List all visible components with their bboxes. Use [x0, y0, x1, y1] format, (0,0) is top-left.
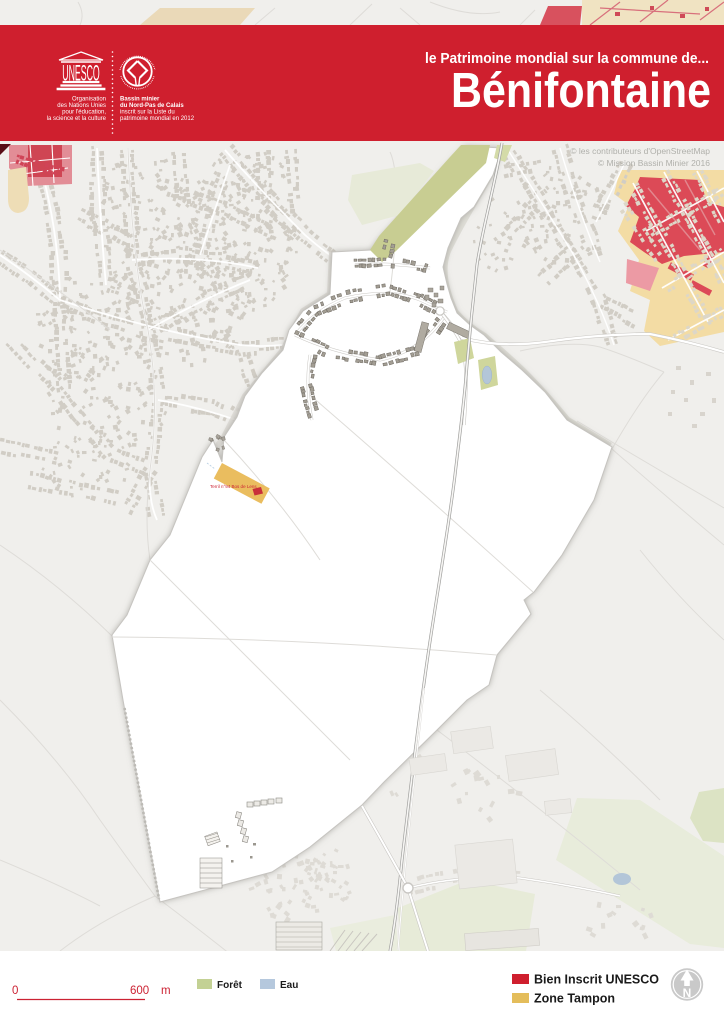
- svg-text:inscrit sur la Liste du: inscrit sur la Liste du: [120, 110, 175, 116]
- svg-text:600: 600: [130, 985, 149, 997]
- svg-text:pour l'éducation,: pour l'éducation,: [62, 110, 106, 116]
- svg-text:Zone Tampon: Zone Tampon: [534, 992, 615, 1006]
- svg-text:N: N: [683, 986, 692, 1000]
- svg-text:la science et la culture: la science et la culture: [47, 116, 107, 122]
- svg-text:patrimoine mondial en 2012: patrimoine mondial en 2012: [120, 116, 195, 122]
- svg-text:Terril n°94 Bos de Lens: Terril n°94 Bos de Lens: [210, 484, 257, 489]
- svg-text:© Mission Bassin Minier 2016: © Mission Bassin Minier 2016: [598, 158, 710, 168]
- svg-text:Bien Inscrit UNESCO: Bien Inscrit UNESCO: [534, 973, 659, 987]
- svg-text:© les contributeurs d'OpenStre: © les contributeurs d'OpenStreetMap: [570, 146, 710, 156]
- svg-text:UNESCO: UNESCO: [62, 61, 100, 86]
- svg-text:m: m: [161, 985, 171, 997]
- svg-text:Eau: Eau: [280, 980, 298, 991]
- svg-text:Forêt: Forêt: [217, 980, 243, 991]
- svg-text:des Nations Unies: des Nations Unies: [57, 103, 106, 109]
- svg-text:du Nord-Pas de Calais: du Nord-Pas de Calais: [120, 103, 184, 109]
- svg-text:Bénifontaine: Bénifontaine: [451, 64, 711, 118]
- svg-text:Bassin minier: Bassin minier: [120, 97, 160, 103]
- svg-text:Organisation: Organisation: [72, 97, 106, 103]
- svg-text:0: 0: [12, 985, 18, 997]
